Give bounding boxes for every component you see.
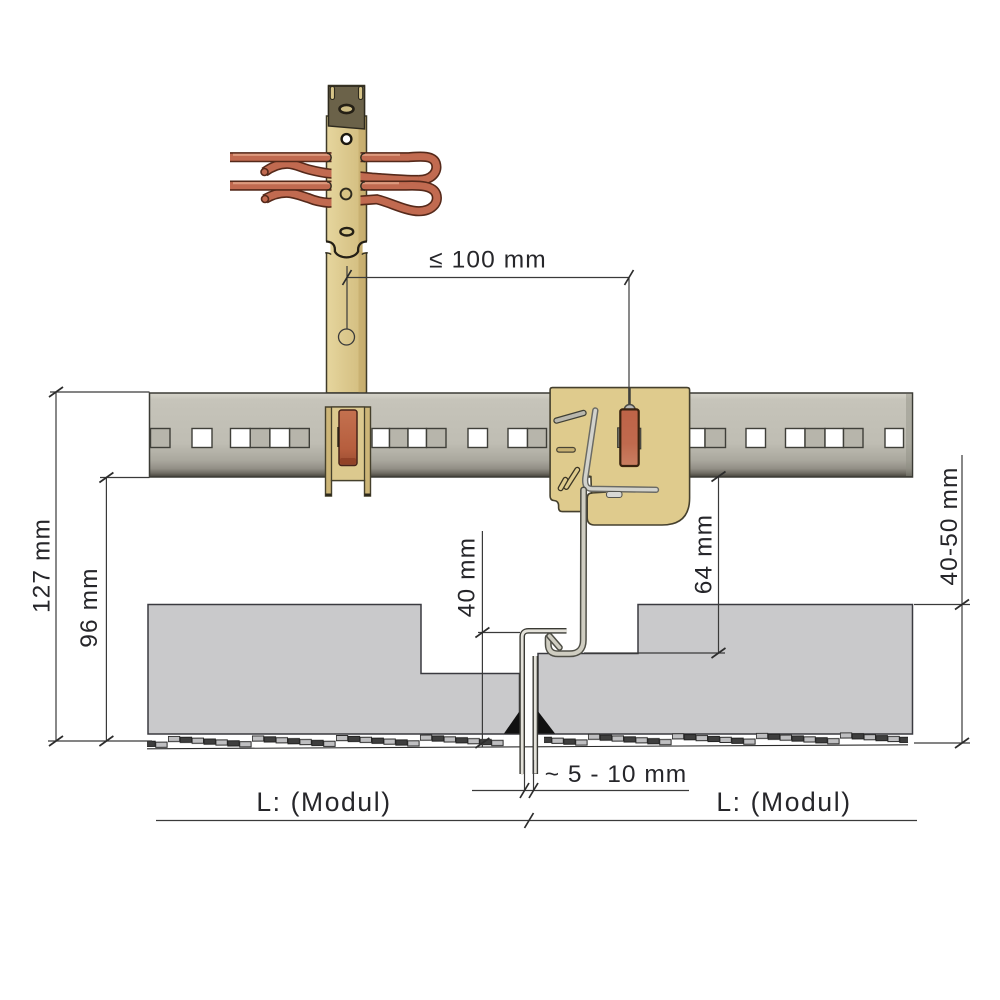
svg-text:96 mm: 96 mm xyxy=(76,567,103,647)
svg-text:~ 5 - 10 mm: ~ 5 - 10 mm xyxy=(545,761,687,788)
svg-text:L: (Modul): L: (Modul) xyxy=(716,787,851,817)
svg-text:127 mm: 127 mm xyxy=(29,518,56,613)
svg-text:64 mm: 64 mm xyxy=(691,514,718,594)
svg-text:40-50 mm: 40-50 mm xyxy=(936,466,963,585)
svg-text:L: (Modul): L: (Modul) xyxy=(256,787,391,817)
svg-text:40 mm: 40 mm xyxy=(453,537,480,617)
svg-text:≤ 100 mm: ≤ 100 mm xyxy=(429,247,547,274)
